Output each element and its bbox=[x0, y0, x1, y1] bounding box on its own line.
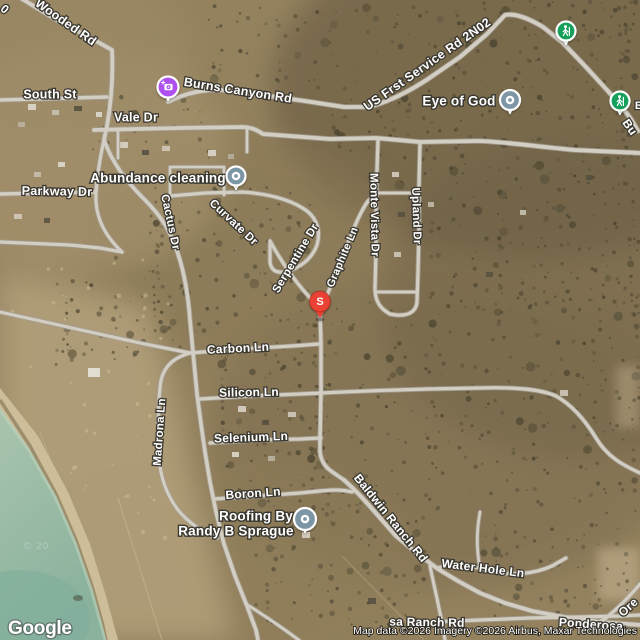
road-label: B bbox=[635, 100, 640, 112]
road-label: Silicon Ln bbox=[219, 385, 279, 400]
pin-letter: S bbox=[316, 296, 323, 308]
map-viewport[interactable]: © 20 Wooded RdSouth StVale DrBurns Canyo… bbox=[0, 0, 640, 640]
poi-label[interactable]: Roofing By bbox=[219, 509, 293, 524]
poi-label[interactable]: Eye of God bbox=[422, 94, 495, 109]
imagery-watermark: © 20 bbox=[24, 541, 49, 552]
road-label: Vale Dr bbox=[114, 110, 158, 124]
road-label: Monte Vista Dr bbox=[367, 173, 380, 257]
google-logo[interactable]: Google bbox=[8, 618, 72, 639]
road-label: South St bbox=[23, 87, 77, 101]
road-label: Selenium Ln bbox=[214, 429, 289, 446]
map-attribution: Map data ©2026 Imagery ©2026 Airbus, Max… bbox=[353, 625, 637, 637]
road-label: Upland Dr bbox=[409, 187, 423, 245]
poi-label[interactable]: Abundance cleaning bbox=[90, 171, 226, 186]
road-label: Parkway Dr bbox=[22, 184, 93, 199]
poi-label[interactable]: Randy B Sprague bbox=[178, 524, 294, 539]
satellite-map[interactable]: © 20 Wooded RdSouth StVale DrBurns Canyo… bbox=[0, 0, 640, 640]
